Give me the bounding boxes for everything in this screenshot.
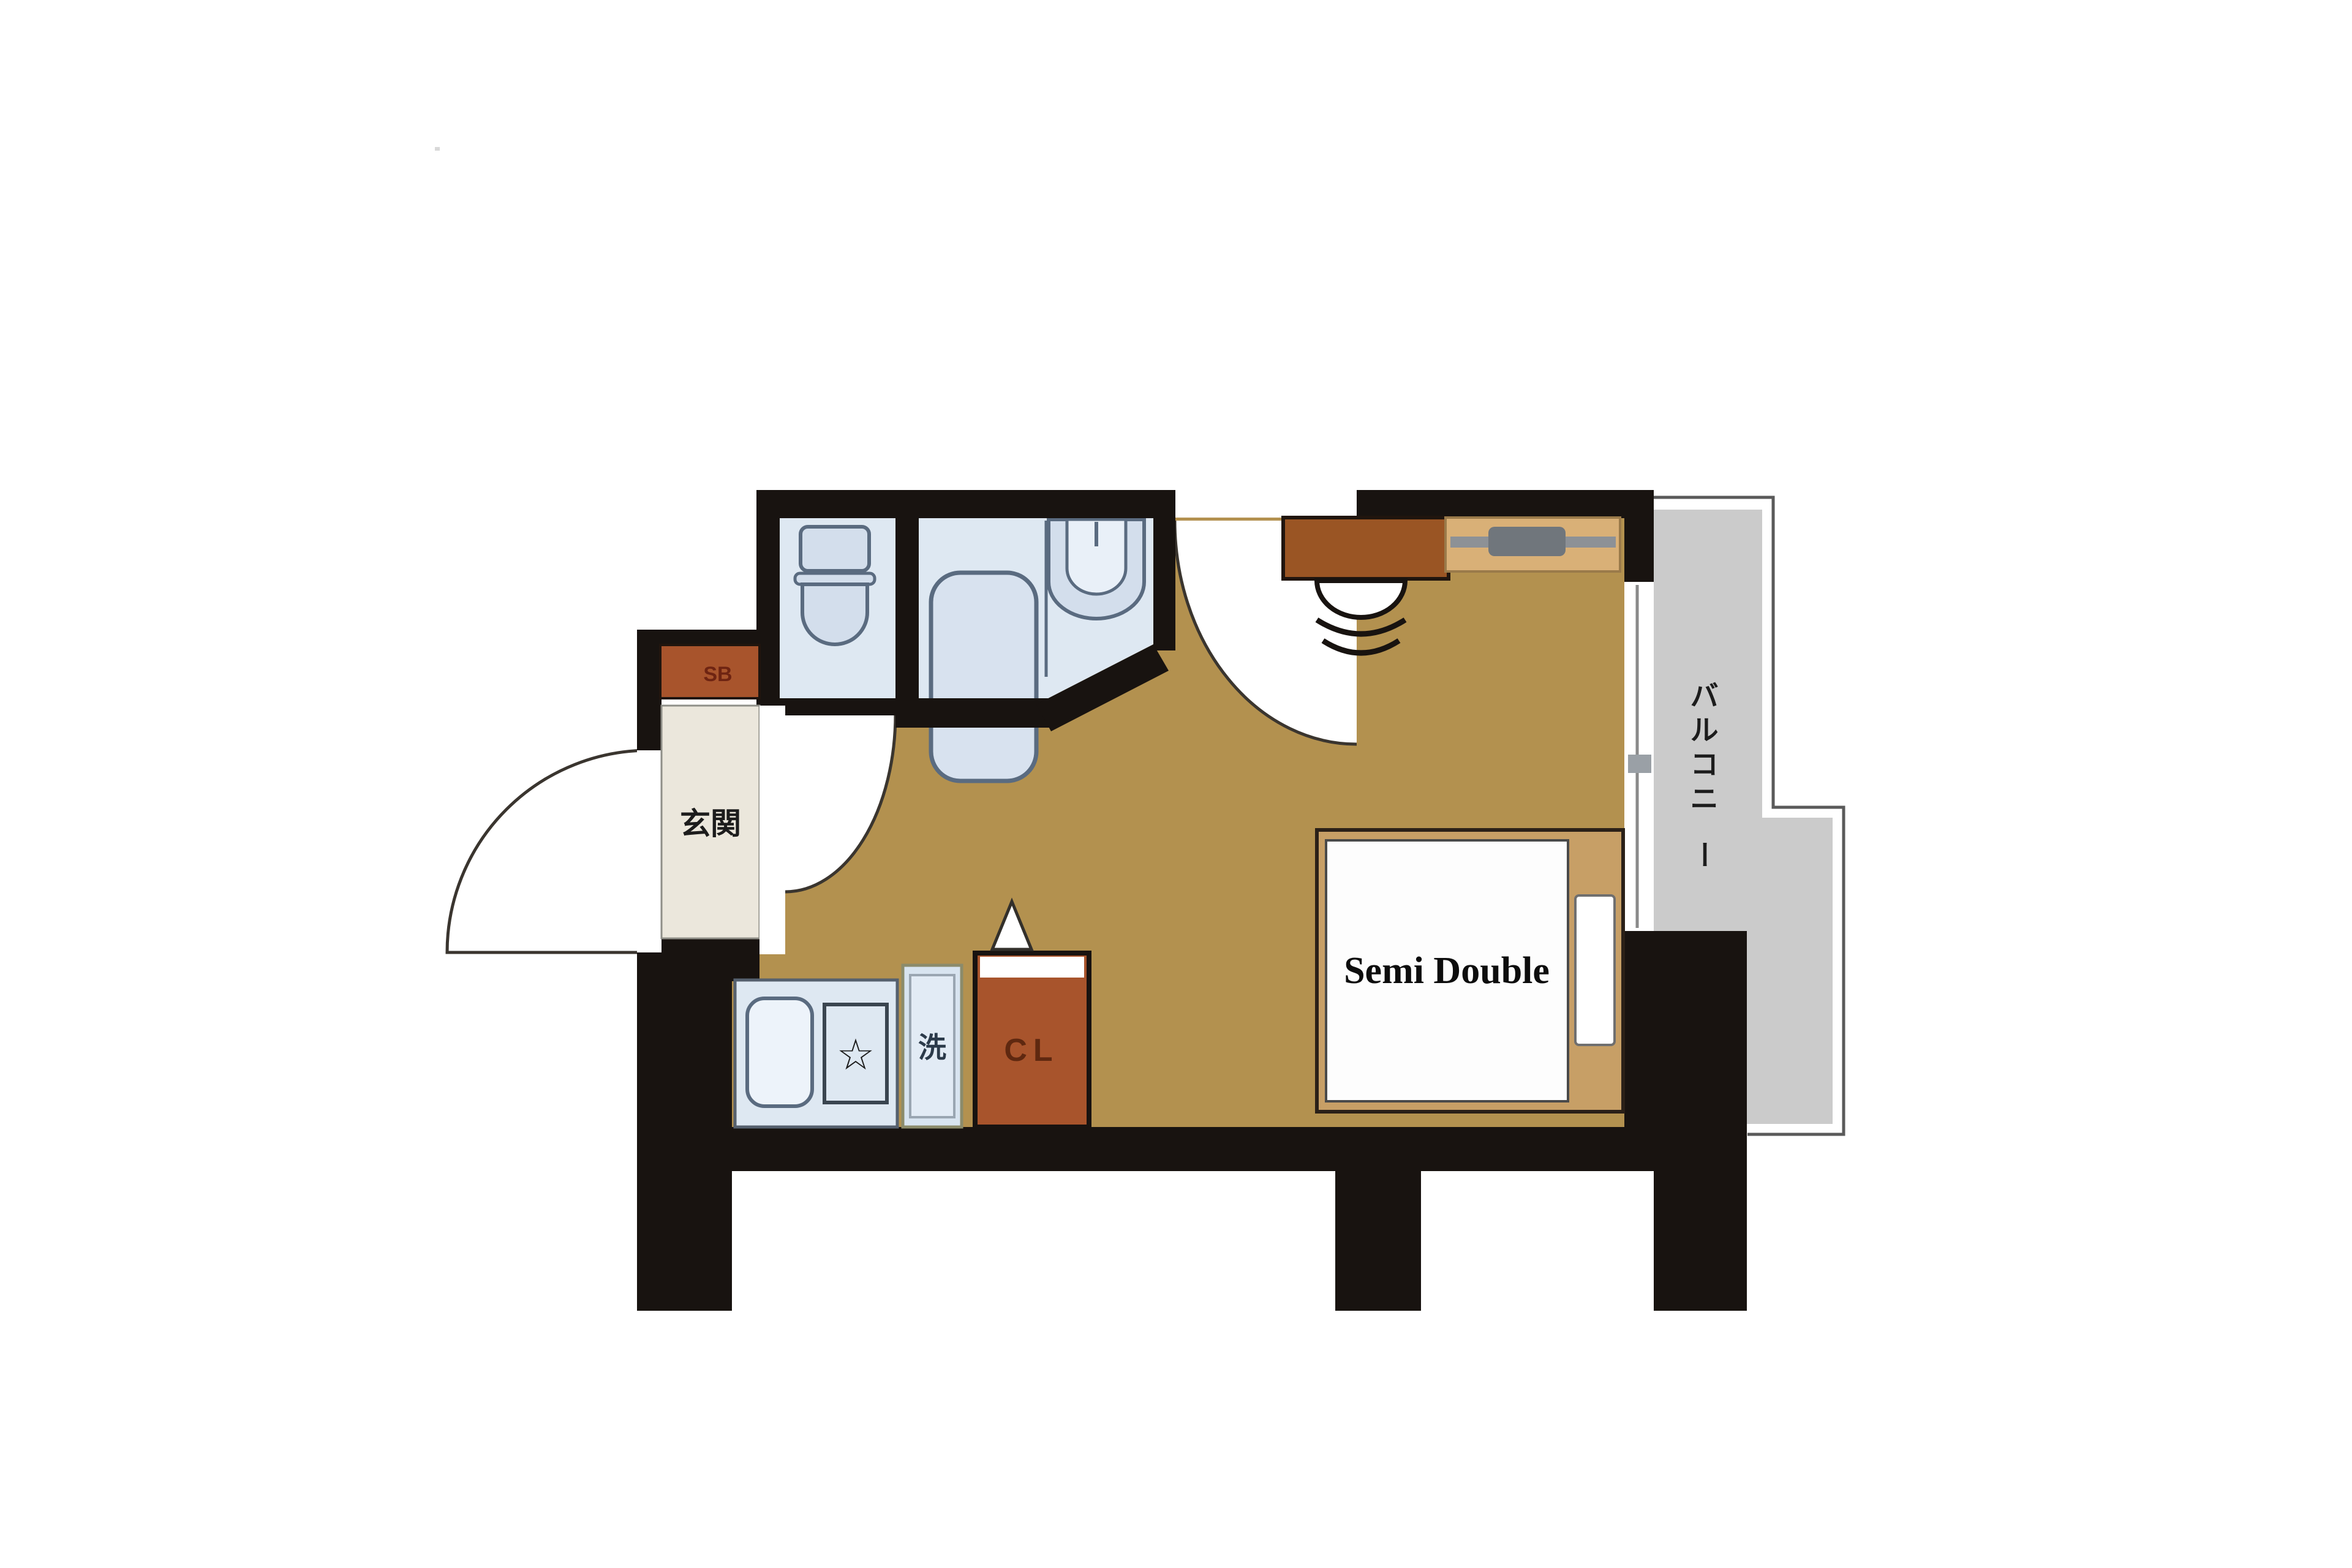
entry-left-wall-upper <box>637 630 661 751</box>
bathtub-icon <box>931 573 1036 781</box>
shoe-box-label: SB <box>703 663 732 686</box>
bottom-wall <box>732 1127 1654 1171</box>
entrance-label: 玄関 <box>680 807 741 841</box>
entrance-step <box>759 706 785 954</box>
closet-top-strip <box>980 957 1084 978</box>
window-latch <box>1628 755 1651 773</box>
toilet-bottom-wall <box>779 698 895 715</box>
left-pillar <box>637 980 732 1311</box>
entry-door-swing <box>447 750 649 952</box>
toilet-icon <box>795 527 875 644</box>
top-wall-left <box>756 490 1175 518</box>
entry-door-opening <box>637 750 661 952</box>
kitchen-sink-icon <box>747 998 812 1106</box>
bath-bottom-wall <box>895 698 1050 728</box>
bed-area: Semi Double <box>1317 830 1623 1112</box>
bath-right-wall <box>1153 490 1175 650</box>
pillow <box>1575 895 1615 1045</box>
mid-pillar <box>1335 1171 1421 1311</box>
tv-board-area <box>1445 518 1620 571</box>
bathroom-sink-icon <box>1049 519 1144 619</box>
tv-icon <box>1488 527 1566 556</box>
right-pillar <box>1654 931 1747 1311</box>
floor-plan: バ ル コ ニ ー <box>0 0 2352 1568</box>
toilet-room <box>779 518 895 698</box>
top-wall-right <box>1357 490 1654 518</box>
closet-label: CL <box>1004 1033 1058 1068</box>
right-wall-top <box>1624 490 1654 582</box>
washing-machine-label: 洗 <box>918 1031 946 1063</box>
toilet-bath-divider <box>895 518 919 726</box>
desk <box>1283 518 1449 579</box>
window <box>1624 582 1654 931</box>
gas-stove-symbol: ☆ <box>837 1031 875 1079</box>
bed-label: Semi Double <box>1344 950 1550 992</box>
artifact-dot <box>435 147 440 151</box>
